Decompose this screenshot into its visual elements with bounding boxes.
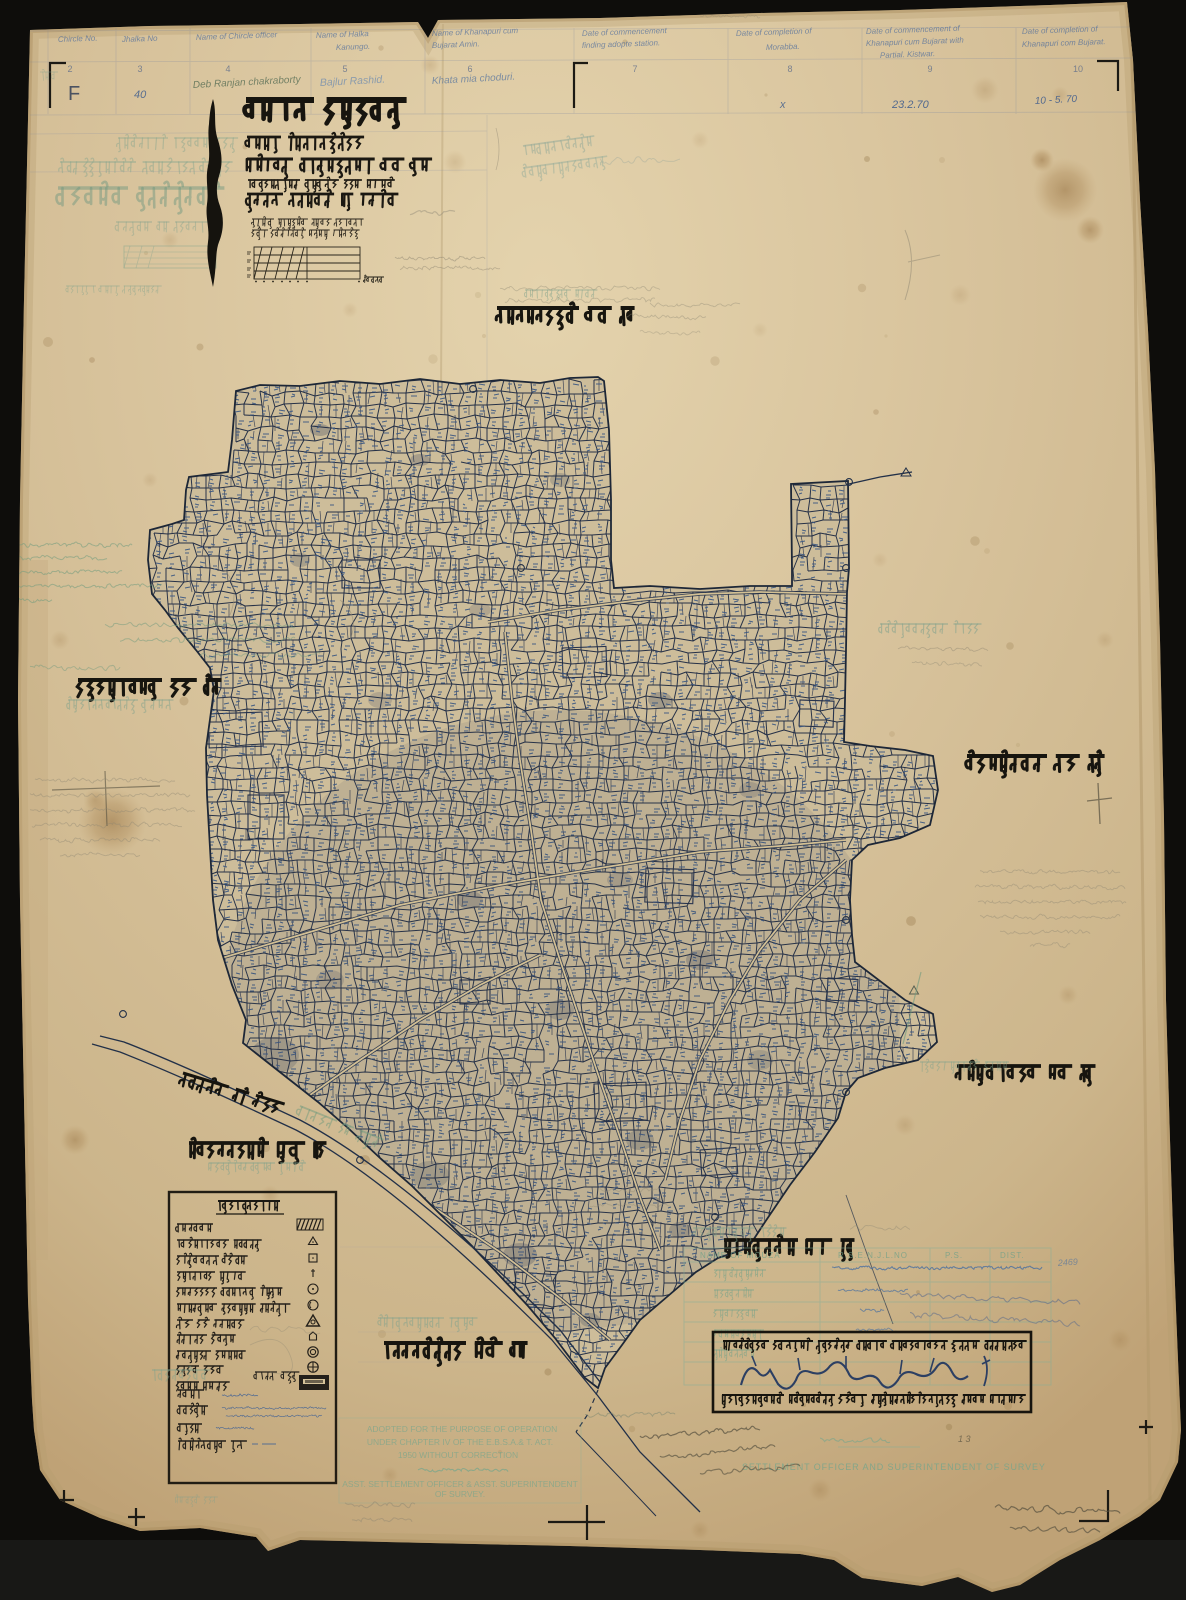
- svg-text:ASST. SETTLEMENT OFFICER & ASS: ASST. SETTLEMENT OFFICER & ASST. SUPERIN…: [342, 1479, 578, 1489]
- svg-text:10: 10: [1073, 64, 1083, 74]
- svg-text:ADOPTED FOR THE PURPOSE OF O: ADOPTED FOR THE PURPOSE OF OPERATION: [367, 1424, 558, 1434]
- svg-text:2: 2: [67, 64, 72, 74]
- svg-text:6: 6: [467, 64, 472, 74]
- svg-text:Name of Halka: Name of Halka: [316, 29, 370, 40]
- svg-text:1 3: 1 3: [958, 1434, 971, 1444]
- svg-text:R.S.E.N.J.L.NO: R.S.E.N.J.L.NO: [838, 1251, 908, 1260]
- svg-text:Bujarat Amin.: Bujarat Amin.: [432, 39, 480, 50]
- svg-text:8: 8: [787, 64, 792, 74]
- svg-text:5: 5: [342, 64, 347, 74]
- svg-text:Kanungo.: Kanungo.: [336, 42, 371, 52]
- svg-text:40: 40: [134, 89, 147, 101]
- svg-text:1950 WITHOUT CORRECTION: 1950 WITHOUT CORRECTION: [398, 1450, 518, 1460]
- svg-text:Morabba.: Morabba.: [766, 42, 800, 52]
- svg-text:F: F: [68, 83, 80, 105]
- svg-text:7: 7: [632, 64, 637, 74]
- svg-text:2469: 2469: [1056, 1257, 1078, 1268]
- svg-text:x: x: [779, 99, 786, 111]
- svg-text:3: 3: [137, 64, 142, 74]
- svg-text:DIST.: DIST.: [1000, 1251, 1025, 1260]
- svg-text:OF SURVEY.: OF SURVEY.: [435, 1489, 485, 1499]
- svg-text:NAME OF MOUZA: NAME OF MOUZA: [700, 1251, 781, 1260]
- svg-text:4: 4: [225, 64, 230, 74]
- svg-text:9: 9: [927, 64, 932, 74]
- svg-text:Chircle No.: Chircle No.: [58, 34, 98, 44]
- svg-text:P.S.: P.S.: [945, 1251, 963, 1260]
- svg-text:Jhalka No: Jhalka No: [121, 34, 158, 44]
- svg-text:10 - 5. 70: 10 - 5. 70: [1035, 94, 1078, 107]
- svg-text:UNDER CHAPTER IV OF THE E.B.S: UNDER CHAPTER IV OF THE E.B.S.A.& T. ACT…: [367, 1437, 553, 1447]
- svg-text:Partial. Kistwar.: Partial. Kistwar.: [880, 49, 936, 60]
- svg-text:23.2.70: 23.2.70: [891, 99, 930, 111]
- svg-text:SETTLEMENT OFFICER AND SUPERI: SETTLEMENT OFFICER AND SUPERINTENDENT OF…: [742, 1462, 1046, 1472]
